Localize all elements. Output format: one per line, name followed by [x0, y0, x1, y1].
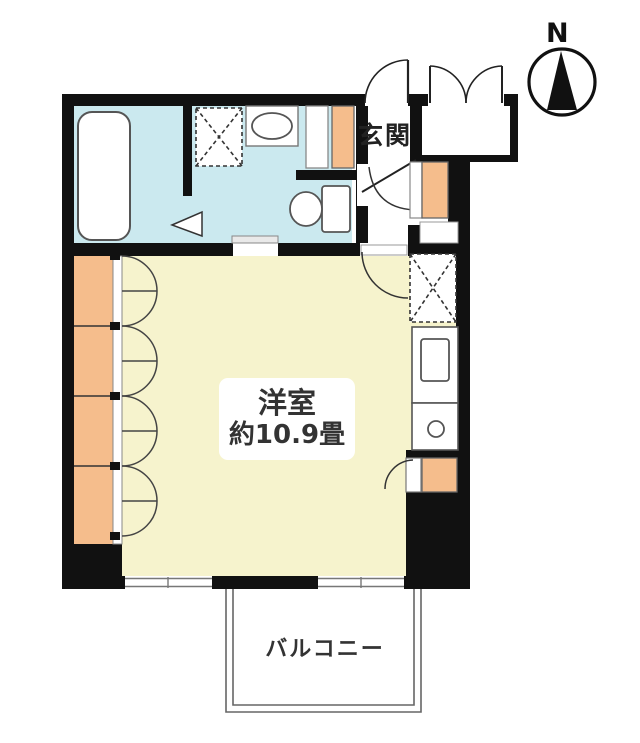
entrance-door-swing: [365, 60, 408, 103]
hall-door-leaf: [361, 245, 407, 255]
room-label-box: 洋室 約10.9畳: [219, 378, 355, 460]
washing-machine-space: [196, 108, 242, 166]
washroom-sliding-door: [232, 236, 278, 256]
closet-hinge: [110, 462, 120, 470]
double-door-swing: [430, 66, 466, 103]
trunk-room-floor: [422, 106, 510, 155]
entrance-label: 玄関: [358, 116, 414, 152]
kitchen-counter: [412, 327, 458, 450]
sliding-door-leaf: [232, 236, 278, 243]
stove-burner: [428, 421, 444, 437]
basin-bowl: [252, 113, 292, 139]
wall-segment: [296, 170, 356, 180]
wall-segment: [212, 576, 318, 589]
window-right: [318, 577, 404, 588]
storage-double-door: [430, 66, 502, 103]
closet-hinge: [110, 322, 120, 330]
wall-segment: [62, 544, 122, 589]
compass: [529, 49, 595, 115]
entrance-door: [365, 60, 408, 103]
washroom-cabinet: [306, 106, 328, 168]
wall-segment: [420, 155, 518, 162]
balcony-label: バルコニー: [245, 631, 405, 663]
wall-segment: [62, 243, 233, 256]
storage-closet-door: [406, 458, 421, 492]
refrigerator-outline: [410, 254, 456, 322]
toilet-bowl: [290, 192, 322, 226]
window-left: [125, 577, 212, 588]
compass-needle: [547, 51, 577, 110]
washroom-storage: [332, 106, 354, 168]
wall-segment: [183, 106, 192, 196]
room-name-label: 洋室: [258, 387, 316, 420]
shoe-cabinet: [422, 162, 448, 218]
toilet-tank: [322, 186, 350, 232]
genkan-inner-door: [357, 160, 416, 210]
wall-segment: [62, 94, 74, 589]
floor-plan: N 玄関 洋室 約10.9畳 バルコニー: [0, 0, 640, 743]
wall-segment: [408, 94, 428, 106]
kitchen-sink: [421, 339, 449, 381]
closet-fill: [74, 256, 113, 544]
sliding-door-opening: [233, 243, 278, 256]
hall-threshold: [420, 222, 458, 243]
wall-segment: [278, 243, 360, 256]
north-label: N: [546, 18, 569, 49]
shoe-cabinet-door: [410, 162, 422, 218]
wall-segment: [62, 94, 365, 106]
closet-hinge: [110, 392, 120, 400]
storage-closet-fill: [422, 458, 457, 492]
room-size-label: 約10.9畳: [229, 420, 345, 451]
wash-basin: [246, 106, 298, 146]
double-door-swing: [466, 66, 502, 103]
wall-segment: [510, 94, 518, 162]
bathtub: [78, 112, 130, 240]
closet-hinge: [110, 532, 120, 540]
refrigerator-space: [410, 254, 456, 322]
closet-hinge: [110, 252, 120, 260]
genkan-door-opening: [357, 164, 368, 206]
